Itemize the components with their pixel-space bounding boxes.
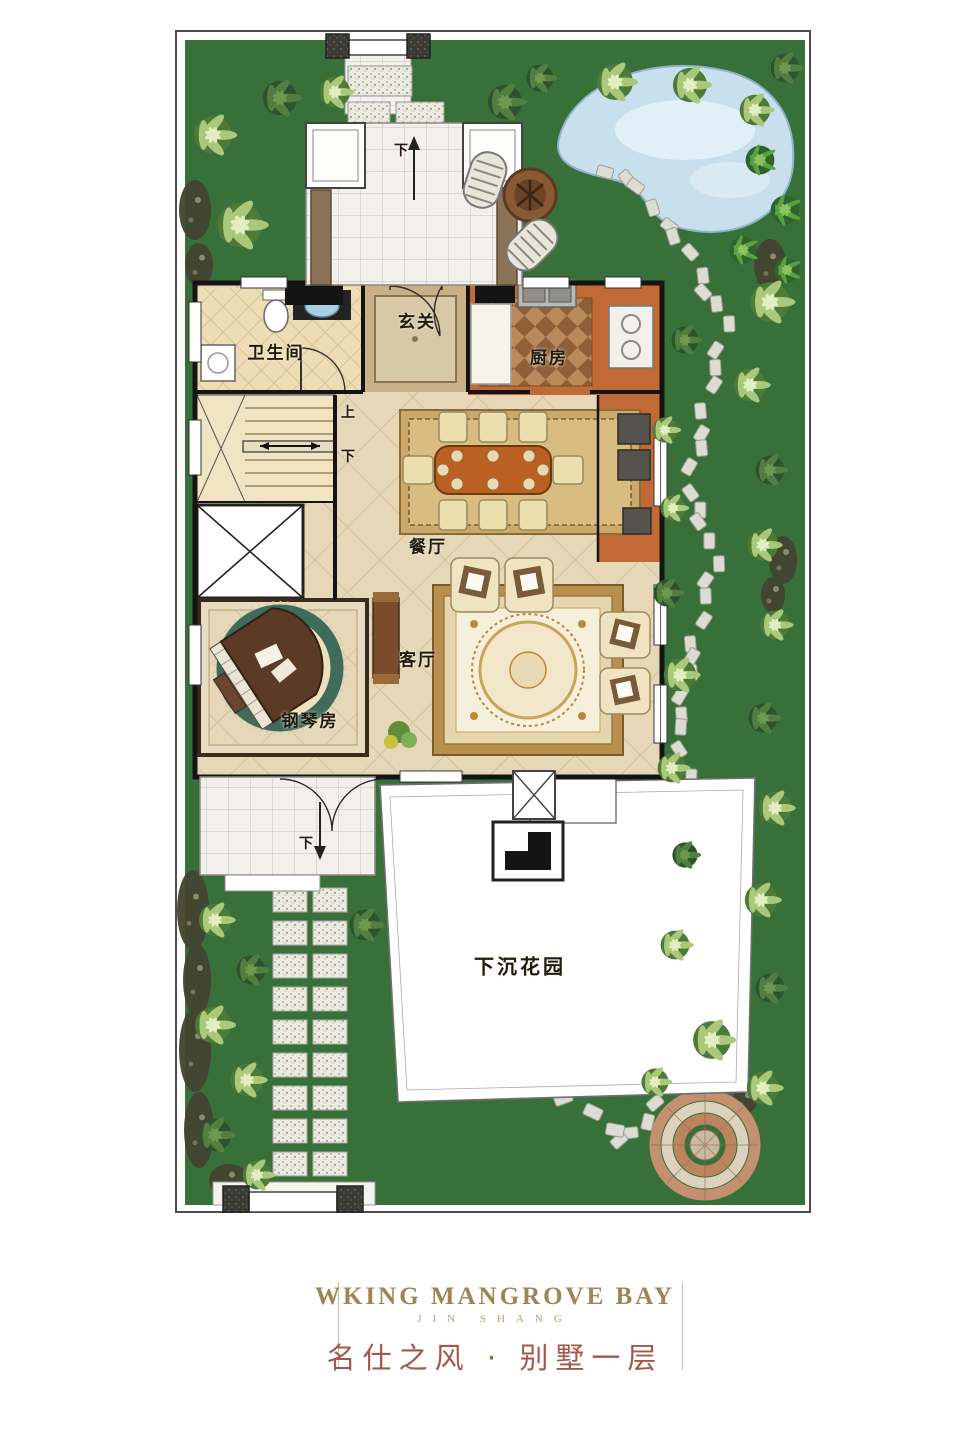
label-porch-down: 下 <box>394 140 408 160</box>
label-stairs-up: 上 <box>341 402 355 422</box>
label-foyer: 玄关 <box>398 308 436 333</box>
plan-title-cn: 名仕之风 · 别墅一层 <box>185 1335 805 1377</box>
dining-set <box>400 410 640 534</box>
label-living: 客厅 <box>399 646 437 671</box>
label-stairs-down: 下 <box>341 446 355 466</box>
staircase <box>197 395 335 502</box>
elevator-shaft <box>197 505 303 598</box>
label-bathroom: 卫生间 <box>248 339 305 364</box>
label-piano-room: 钢琴房 <box>282 707 339 732</box>
label-terrace-down: 下 <box>299 833 313 853</box>
site-plan-illustration <box>185 40 805 1205</box>
label-sunken-garden: 下沉花园 <box>474 951 566 980</box>
floor-plan-page: 玄关 卫生间 厨房 上 下 餐厅 客厅 钢琴房 下沉花园 下 下 WKING M… <box>0 0 974 1442</box>
label-dining: 餐厅 <box>409 533 447 558</box>
brand-name-en: WKING MANGROVE BAY <box>185 1283 805 1311</box>
fire-pit <box>504 169 556 221</box>
label-kitchen: 厨房 <box>530 344 568 369</box>
brand-subtitle: JIN SHANG <box>185 1313 805 1325</box>
circular-patio <box>651 1090 759 1200</box>
